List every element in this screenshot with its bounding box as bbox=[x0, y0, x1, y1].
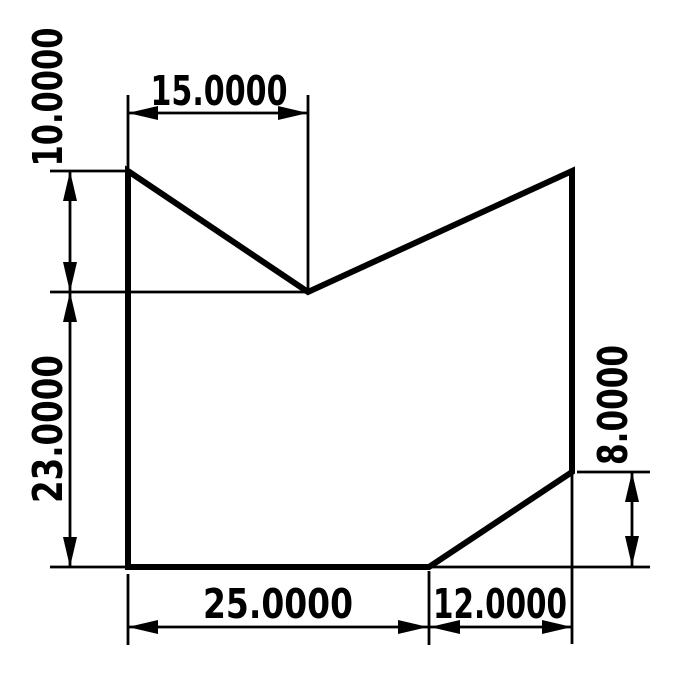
dimension-bottom-left-width: 25.0000 bbox=[128, 571, 429, 645]
part-outline bbox=[128, 171, 572, 567]
dimension-label: 25.0000 bbox=[203, 580, 353, 628]
dimension-left-height: 23.0000 bbox=[24, 292, 126, 567]
dimension-label: 10.0000 bbox=[24, 28, 72, 167]
dimension-label: 12.0000 bbox=[433, 580, 567, 628]
dimension-label: 15.0000 bbox=[151, 67, 288, 115]
arrowhead-up bbox=[63, 292, 77, 322]
arrowhead-right bbox=[398, 620, 428, 634]
arrowhead-left bbox=[128, 620, 158, 634]
arrowhead-down bbox=[63, 537, 77, 567]
arrowhead-down bbox=[625, 536, 639, 566]
dimension-top-width: 15.0000 bbox=[128, 67, 308, 290]
arrowhead-down bbox=[63, 262, 77, 292]
technical-drawing-svg: 15.0000 10.0000 23.0000 25.0000 bbox=[0, 0, 680, 675]
dimension-label: 8.0000 bbox=[589, 345, 637, 465]
drawing-canvas: 15.0000 10.0000 23.0000 25.0000 bbox=[0, 0, 680, 675]
dimension-label: 23.0000 bbox=[24, 355, 72, 503]
arrowhead-up bbox=[625, 472, 639, 502]
dimension-right-height: 8.0000 bbox=[430, 345, 650, 567]
dimension-bottom-right-width: 12.0000 bbox=[430, 472, 572, 644]
arrowhead-up bbox=[63, 171, 77, 201]
